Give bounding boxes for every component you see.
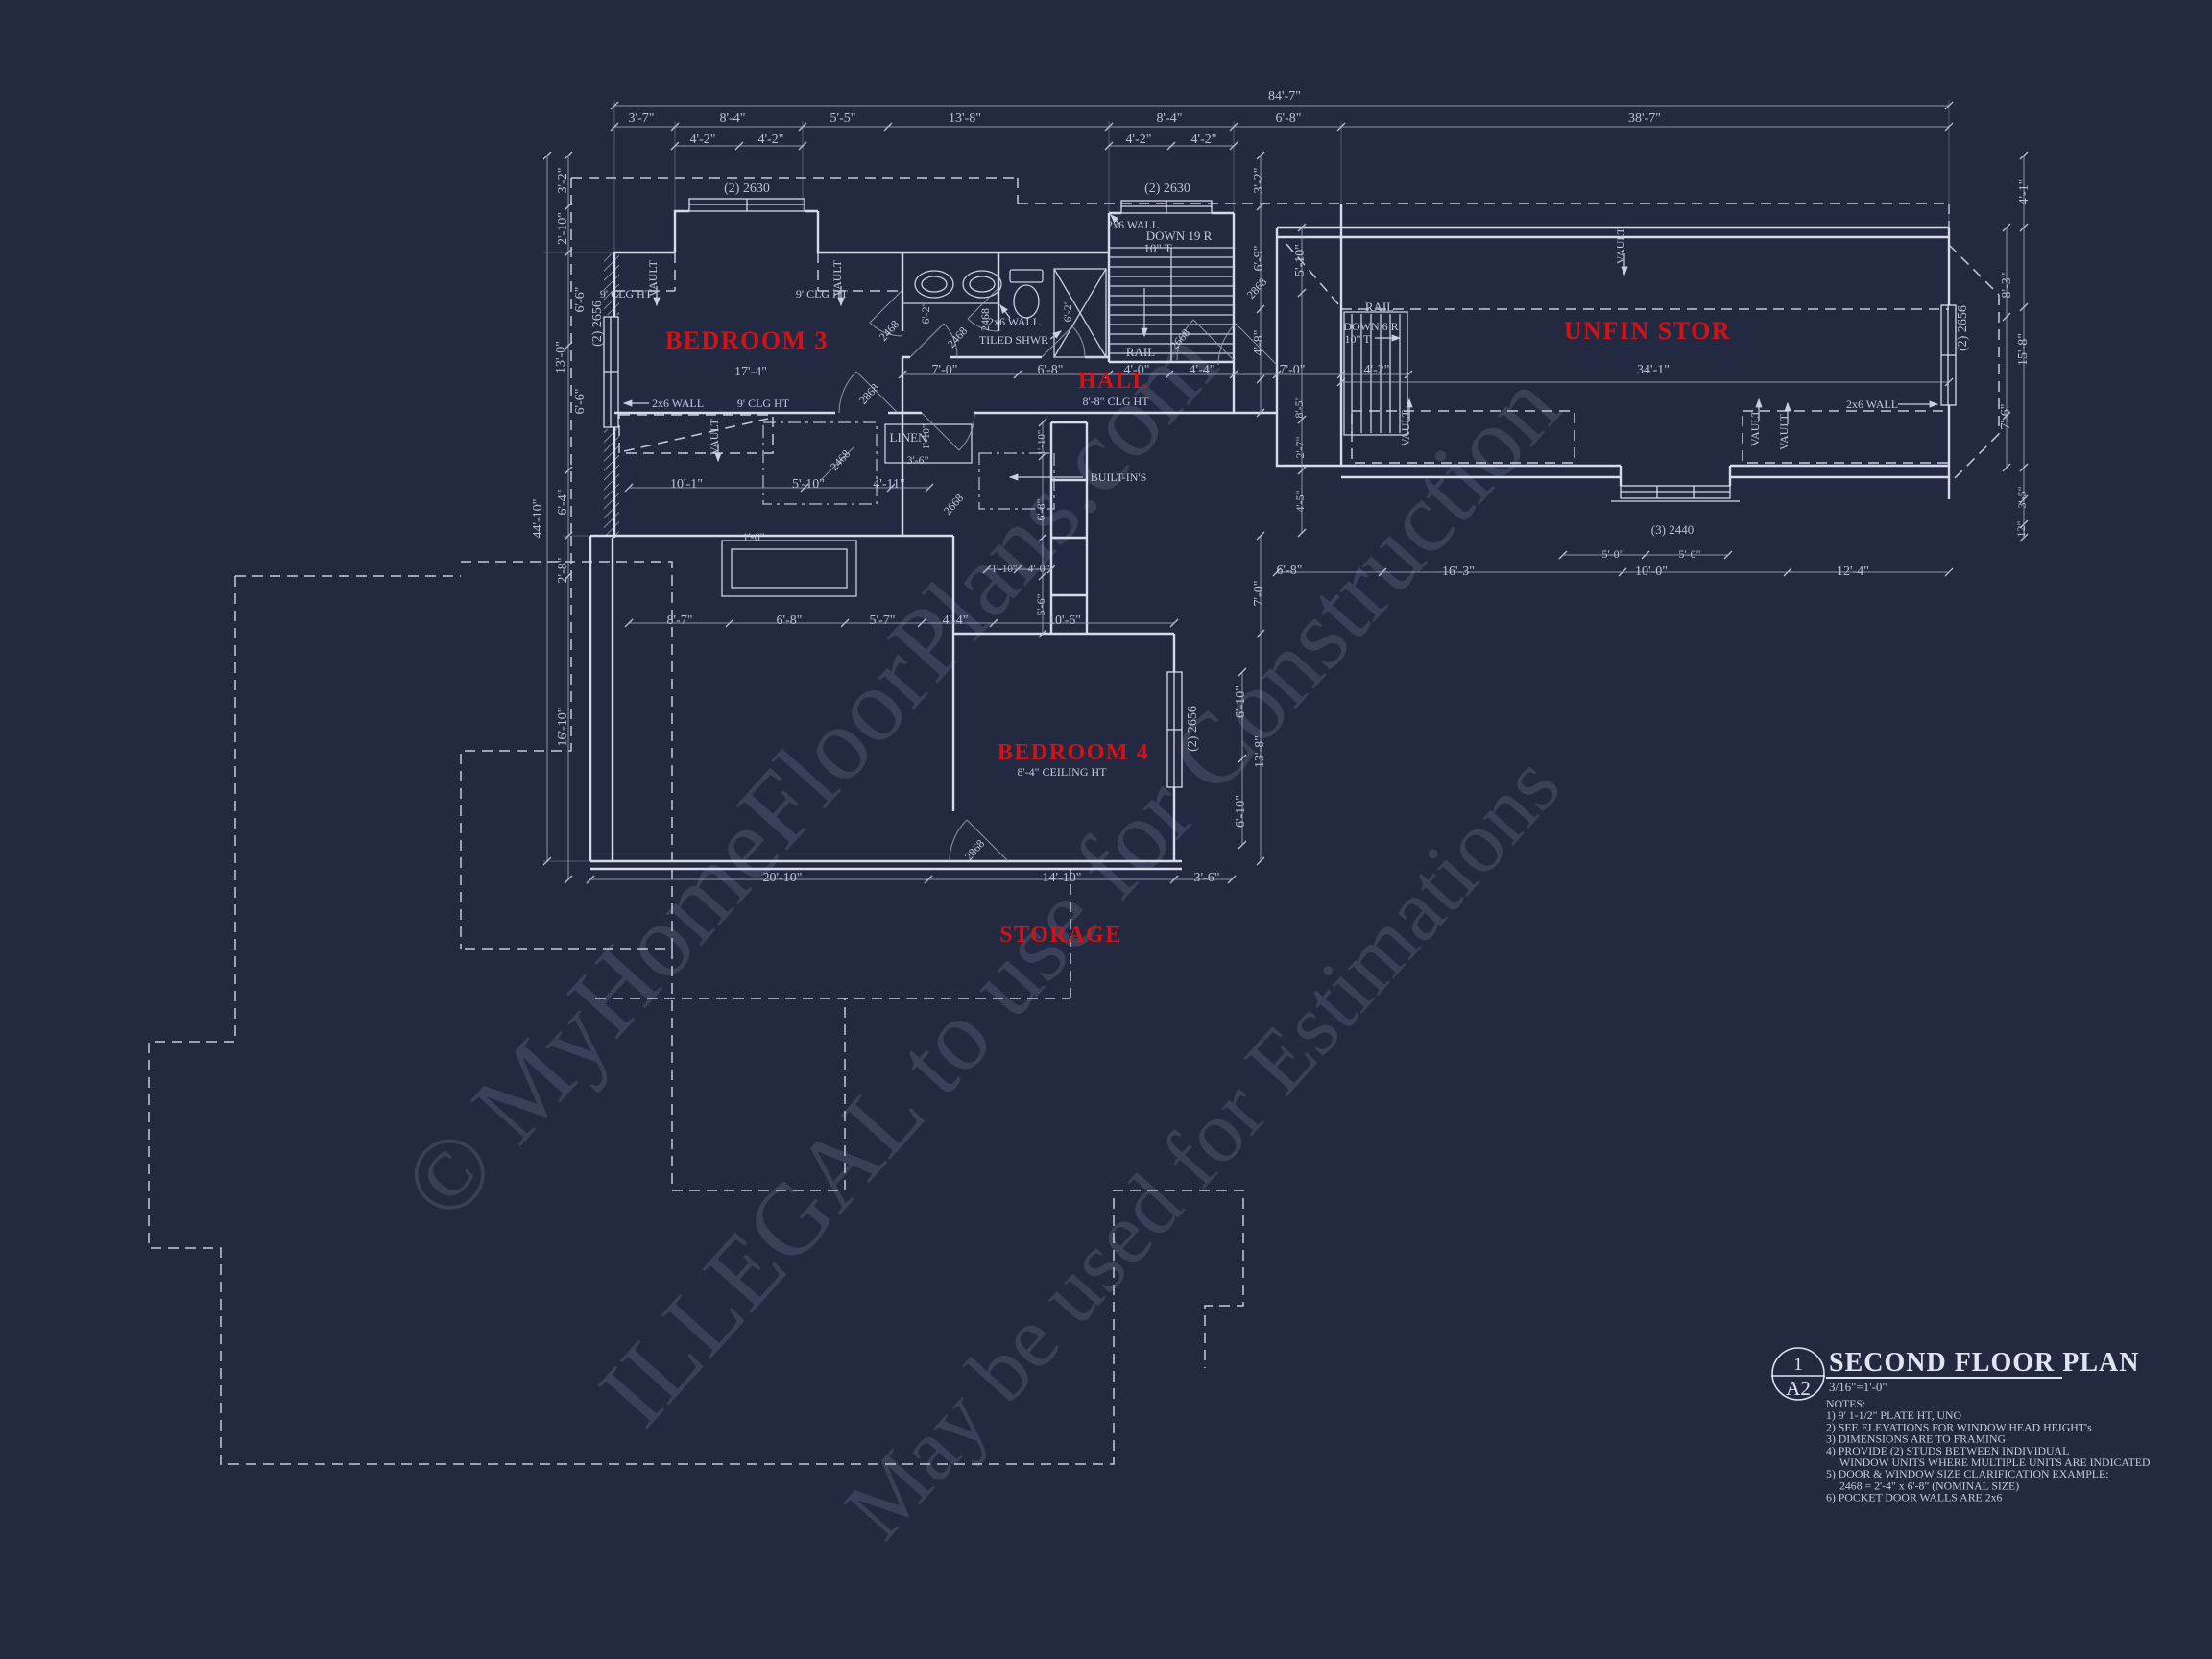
plan-label: 16'-3"	[1442, 565, 1475, 579]
floor-plan-canvas: © MyHomeFloorPlans.com ILLEGAL to use fo…	[0, 0, 2212, 1659]
plan-label: 4'-0"	[1027, 562, 1049, 575]
plan-label: 3'-5"	[2015, 486, 2029, 508]
plan-label: (2) 2656	[1956, 305, 1970, 351]
plan-label: 9' CLG HT	[737, 397, 790, 410]
plan-label: 7'-0"	[1280, 363, 1306, 377]
plan-label: 2868	[962, 837, 987, 863]
note-line: 6) POCKET DOOR WALLS ARE 2x6	[1826, 1491, 2003, 1504]
plan-label: 12'-4"	[1837, 565, 1869, 579]
plan-label: 9' CLG HT	[600, 287, 653, 301]
plan-label: 14'-10"	[1043, 871, 1082, 885]
plan-label: 6'-6"	[573, 389, 588, 415]
sink-icon	[963, 271, 1001, 298]
plan-label: VAULT	[1399, 409, 1412, 446]
plan-label: 10" T	[1143, 241, 1171, 255]
plan-label: 6'-6"	[573, 287, 588, 313]
plan-label: 4'-2"	[1364, 363, 1390, 377]
plan-label: 2'-10"	[556, 212, 570, 245]
plan-label: 2x6 WALL	[1846, 397, 1898, 411]
plan-label: 20'-10"	[763, 871, 803, 885]
toilet-icon	[1010, 270, 1043, 282]
plan-label: 16'-10"	[556, 708, 570, 747]
plan-label: 6'-2"	[1061, 300, 1074, 322]
plan-label: 4'-8"	[1252, 330, 1266, 356]
plan-label: VAULT	[708, 418, 721, 455]
plan-label: 8'-3"	[2000, 273, 2014, 299]
plan-label: VAULT	[1614, 227, 1627, 264]
plan-label: 1'-10"	[1036, 430, 1047, 456]
sheet-title: SECOND FLOOR PLAN	[1829, 1348, 2139, 1378]
plan-label: 3'-2"	[556, 168, 570, 194]
plan-label: 44'-10"	[531, 499, 545, 539]
plan-label: BUILT-IN'S	[1091, 470, 1147, 484]
plan-label: 8'-7"	[667, 613, 693, 628]
plan-label: 2'-7"	[1293, 436, 1307, 458]
plan-label: 5'-0"	[1678, 547, 1700, 561]
plan-label: (2) 2656	[590, 301, 605, 347]
plan-label: 8'-8" CLG HT	[1082, 395, 1149, 408]
plan-label: 6'-8"	[1277, 564, 1303, 578]
plan-label: 7'-0"	[932, 363, 958, 377]
plan-label: 4'-2"	[758, 132, 784, 147]
plan-label: 5'-10"	[792, 477, 825, 492]
room-label: BEDROOM 3	[665, 326, 829, 354]
plan-label: 4'-11"	[873, 477, 904, 492]
plan-label: 38'-7"	[1628, 111, 1661, 126]
plan-label: 6'-9"	[1252, 246, 1266, 272]
drawing-scale: 3/16"=1'-0"	[1829, 1380, 1887, 1394]
plan-label: 8'-4"	[720, 111, 746, 126]
plan-label: 13'-8"	[1253, 735, 1267, 768]
plan-label: 1'-10"	[921, 424, 932, 450]
plan-label: 2868	[1244, 276, 1269, 301]
plan-label: 13'-0"	[554, 341, 568, 373]
plan-label: VAULT	[1777, 413, 1791, 450]
plan-label: 2x6 WALL	[652, 397, 704, 410]
detail-number: 1	[1793, 1355, 1803, 1375]
plan-label: 6'-4"	[556, 490, 570, 516]
plan-label: 2668	[941, 492, 966, 517]
plan-label: 84'-7"	[1268, 89, 1301, 104]
plan-label: 4'-2"	[690, 132, 716, 147]
plan-label: 8'-4" CEILING HT	[1017, 765, 1107, 779]
plan-label: (2) 2630	[724, 181, 770, 196]
plan-label: 5'-7"	[870, 613, 896, 628]
plan-label: 4'-2"	[1191, 132, 1217, 147]
sheet-number: A2	[1786, 1377, 1811, 1400]
plan-label: 3'-6"	[1194, 871, 1220, 885]
plan-label: 3'-2"	[1252, 168, 1266, 194]
notes-list: NOTES:1) 9' 1-1/2" PLATE HT, UNO2) SEE E…	[1826, 1397, 2151, 1504]
plan-label: 6'-8"	[1276, 111, 1302, 126]
plan-label: 7'-6"	[1999, 404, 2013, 430]
plan-label: 3'-6"	[906, 453, 928, 467]
plan-label: 2468	[877, 318, 902, 344]
plan-label: 10'-1"	[670, 477, 703, 492]
plan-label: 3'-7"	[629, 111, 655, 126]
wall-hatch	[604, 429, 619, 535]
blueprint-page: © MyHomeFloorPlans.com ILLEGAL to use fo…	[0, 0, 2212, 1659]
plan-label: 9' CLG HT	[796, 287, 849, 301]
plan-label: 8'-4"	[1157, 111, 1183, 126]
watermark-line-3: May be used for Estimations	[826, 736, 1578, 1556]
plan-label: 5'-0"	[1601, 547, 1623, 561]
room-label: STORAGE	[999, 923, 1121, 948]
plan-label: 12"	[2014, 520, 2028, 537]
plan-label: (2) 2656	[1186, 706, 1200, 752]
plan-label: 6'-10"	[1234, 685, 1248, 718]
plan-label: 10'-6"	[1048, 613, 1081, 628]
room-label: HALL	[1078, 369, 1149, 394]
plan-label: 5'-5"	[830, 111, 856, 126]
plan-label: 6'-10"	[1234, 795, 1248, 828]
plan-label: 4'-4"	[943, 613, 969, 628]
plan-label: 8'-5"	[1292, 396, 1306, 418]
plan-label: 6'-8"	[777, 613, 803, 628]
plan-label: RAIL	[1365, 300, 1394, 314]
plan-label: RAIL	[1126, 345, 1155, 359]
plan-label: 17'-4"	[734, 365, 767, 379]
room-label: BEDROOM 4	[998, 740, 1149, 765]
room-label: UNFIN STOR	[1564, 317, 1731, 345]
plan-label: 1'-10"	[992, 564, 1018, 575]
title-block: 1 A2 SECOND FLOOR PLAN 3/16"=1'-0" NOTES…	[1771, 1348, 2151, 1504]
plan-label: 6'-8"	[1038, 363, 1064, 377]
plan-label: 4'-5"	[1293, 490, 1307, 512]
plan-label: 34'-1"	[1637, 363, 1670, 377]
plan-label: 15'-8"	[2016, 333, 2031, 366]
plan-label: 6'-2"	[919, 301, 932, 324]
plan-label: 13'-8"	[949, 111, 981, 126]
plan-label: 4'-4"	[1190, 363, 1215, 377]
plan-label: 10'-0"	[1635, 565, 1668, 579]
plan-label: 2x6 WALL	[988, 315, 1040, 328]
plan-label: 5'-10"	[1293, 244, 1308, 276]
plan-label: 6'-8"	[1034, 498, 1047, 520]
plan-label: DOWN 6 R	[1343, 320, 1398, 333]
plan-label: 7'-0"	[1252, 581, 1266, 607]
plan-label: (2) 2630	[1144, 181, 1190, 196]
plan-label: 10" T	[1344, 332, 1371, 346]
sink-icon	[915, 271, 953, 298]
plan-label: VAULT	[1748, 409, 1762, 446]
plan-label: 4'-2"	[1126, 132, 1152, 147]
plan-label: 2868	[856, 381, 881, 407]
plan-label: 5'-6"	[1034, 593, 1047, 615]
plan-label: 2'-8"	[556, 558, 570, 584]
plan-label: (3) 2440	[1651, 522, 1694, 537]
plan-label: TILED SHWR	[979, 333, 1048, 347]
plan-label: 4'-1"	[2017, 180, 2032, 205]
wall-hatch	[604, 253, 619, 315]
watermark-line-1: © MyHomeFloorPlans.com	[381, 306, 1239, 1241]
plan-label: 1'-6"	[742, 530, 764, 543]
